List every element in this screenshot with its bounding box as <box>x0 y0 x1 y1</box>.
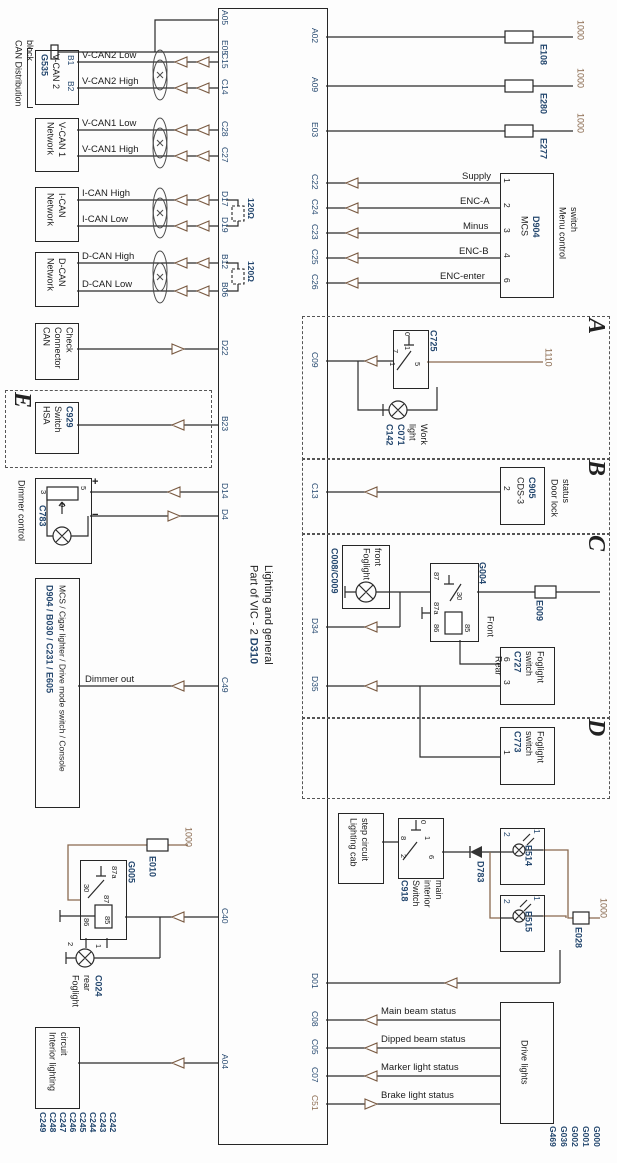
c024-id: C024 <box>93 975 102 1007</box>
pin-b1: B1 <box>66 55 75 65</box>
mcs-pin-6: 6 <box>502 278 511 283</box>
c727-pin-3: 3 <box>502 680 511 685</box>
wire-1000-e028: 1000 <box>598 898 607 918</box>
g535-name: V-CAN 2 <box>50 54 59 89</box>
cds3-pin-2: 2 <box>502 486 511 491</box>
e514-pin-2: 2 <box>502 832 511 837</box>
conn-c246: C246 <box>68 1112 77 1132</box>
c725-switch-box <box>393 330 429 389</box>
interior-l1: Interior lighting <box>47 1032 56 1091</box>
c918-switch-box <box>398 818 444 879</box>
cds3-id: C905 <box>526 477 535 504</box>
signal-supply: Supply <box>462 171 491 182</box>
menu-switch-caption: Menu control switch <box>557 207 578 259</box>
pin-d22: D22 <box>220 340 229 356</box>
pin-e03: E03 <box>310 122 319 137</box>
mcs-id: D904 <box>530 216 539 238</box>
mcs-pin-3: 3 <box>502 228 511 233</box>
pin-c26: C26 <box>310 274 319 290</box>
c727-id: C727 <box>512 651 521 683</box>
c024-l2: rear <box>81 975 90 1007</box>
ican-name: I-CAN <box>56 193 65 226</box>
wire-1000-e03: 1000 <box>575 113 584 133</box>
work-light-id-c142: C142 <box>384 424 393 446</box>
section-d-box <box>302 717 610 799</box>
pin-c15: C15 <box>220 53 229 69</box>
g004-pin-86: 86 <box>432 624 440 632</box>
hsa-switch-label: HSA Switch C929 <box>41 406 73 433</box>
ground-g469: G469 <box>548 1126 557 1147</box>
pin-b2: B2 <box>66 81 75 91</box>
d783-id: D783 <box>475 861 484 883</box>
wire-label-dcan-low: D-CAN Low <box>82 279 132 290</box>
foglight-front-l1: Foglight <box>361 548 370 580</box>
c727-pin-6: 6 <box>502 657 511 662</box>
ican-type: Network <box>45 193 54 226</box>
c773-l2: switch <box>523 731 532 763</box>
pin-a04: A04 <box>220 1054 229 1069</box>
resistor-120-ican: 120Ω <box>246 198 255 219</box>
c725-pin-7: 7 <box>391 349 399 353</box>
conn-c248: C248 <box>48 1112 57 1132</box>
can-group-label: CAN Distribution block <box>13 40 34 107</box>
mcs-pin-1: 1 <box>502 178 511 183</box>
c727-l2: switch <box>523 651 532 683</box>
pin-c09: C09 <box>310 352 319 368</box>
pin-c40: C40 <box>220 908 229 924</box>
ground-g002: G002 <box>570 1126 579 1147</box>
pin-d17: D17 <box>220 191 229 207</box>
dcan-name: D-CAN <box>56 258 65 291</box>
title-part: Part of VIC - 2 <box>248 565 260 635</box>
conn-c249: C249 <box>38 1112 47 1132</box>
concheck-l3: Check <box>64 327 73 369</box>
dimmer-pin-9: 9 <box>58 503 66 507</box>
c725-pin-0: 0 <box>403 332 411 336</box>
wire-label-vcan1-high: V-CAN1 High <box>82 144 139 155</box>
c918-pin-8: 8 <box>399 836 407 840</box>
e515-id: E515 <box>523 911 532 932</box>
signal-enc-enter: ENC-enter <box>440 271 485 282</box>
pin-d35: D35 <box>310 676 319 692</box>
menu-caption-l2: switch <box>568 207 577 259</box>
work-light-l1: Work <box>418 424 427 446</box>
can-connector-check-label: CAN Connector Check <box>41 327 73 369</box>
fuse-e277-id: E277 <box>538 138 547 159</box>
hsa-l1: HSA <box>41 406 50 433</box>
foglight-front-ids: C008/C009 <box>329 548 338 594</box>
pin-c13: C13 <box>310 483 319 499</box>
ground-g001: G001 <box>581 1126 590 1147</box>
wire-label-ican-low: I-CAN Low <box>82 214 128 225</box>
section-b-letter: B <box>582 460 609 476</box>
conn-c243: C243 <box>98 1112 107 1132</box>
ground-g036: G036 <box>559 1126 568 1147</box>
c725-pin-5: 5 <box>413 362 421 366</box>
menu-caption-l1: Menu control <box>557 207 566 259</box>
title-code: D310 <box>248 638 260 664</box>
front-wire-label: Front <box>485 616 494 637</box>
e514-id: E514 <box>523 845 532 866</box>
mcs-pin-4: 4 <box>502 253 511 258</box>
section-e-letter: E <box>8 392 35 408</box>
c725-id: C725 <box>428 330 437 352</box>
wire-label-vcan1-low: V-CAN1 Low <box>82 118 136 129</box>
resistor-120-dcan: 120Ω <box>246 261 255 282</box>
section-a-box <box>302 316 610 460</box>
g005-pin-86: 86 <box>82 918 90 926</box>
signal-enc-a: ENC-A <box>460 196 490 207</box>
pin-d34: D34 <box>310 618 319 634</box>
pin-c07: C07 <box>310 1067 319 1083</box>
door-lock-l2: status <box>560 479 569 517</box>
pin-a09: A09 <box>310 77 319 92</box>
c773-id: C773 <box>512 731 521 763</box>
cab-step-l1: Lighting cab <box>348 818 357 867</box>
conn-c247: C247 <box>58 1112 67 1132</box>
dimmer-out-label: Dimmer out <box>85 674 134 685</box>
hsa-l2: Switch <box>52 406 61 433</box>
vcan1-name: V-CAN 1 <box>56 122 65 157</box>
pin-d14: D14 <box>220 483 229 499</box>
pin-d19: D19 <box>220 217 229 233</box>
c725-pin-1a: 1 <box>403 346 411 350</box>
pin-d01: D01 <box>310 973 319 989</box>
ecu-title: Part of VIC - 2 D310 Lighting and genera… <box>247 565 273 665</box>
door-lock-caption: Door lock status <box>549 479 570 517</box>
c918-id: C918 <box>399 880 408 908</box>
g005-pin-87a: 87a <box>110 866 118 879</box>
dimmer-pin-3: 3 <box>39 490 47 494</box>
fuse-e010-id: E010 <box>147 856 156 877</box>
pin-c08: C08 <box>310 1011 319 1027</box>
dimmer-id: C783 <box>37 505 46 527</box>
pin-c28: C28 <box>220 121 229 137</box>
door-lock-l1: Door lock <box>549 479 558 517</box>
pin-c23: C23 <box>310 224 319 240</box>
g004-pin-87a: 87a <box>432 602 440 615</box>
wire-label-dcan-high: D-CAN High <box>82 251 134 262</box>
g004-pin-87: 87 <box>432 572 440 580</box>
pin-a02: A02 <box>310 28 319 43</box>
c918-pin-2: 2 <box>399 854 407 858</box>
conn-c244: C244 <box>88 1112 97 1132</box>
wire-label-ican-high: I-CAN High <box>82 188 130 199</box>
c725-pin-1b: 1 <box>388 362 396 366</box>
conn-c242: C242 <box>108 1112 117 1132</box>
mcs-box-label: MCS D904 <box>519 216 540 238</box>
signal-main-beam: Main beam status <box>381 1006 456 1017</box>
concheck-l1: CAN <box>41 327 50 369</box>
e514-pin-1: 1 <box>532 829 541 834</box>
pin-b23: B23 <box>220 416 229 431</box>
vcan1-network-label: Network V-CAN 1 <box>45 122 66 157</box>
c918-pin-6: 6 <box>427 855 435 859</box>
work-light-label: C142 C071 light Work <box>384 424 428 446</box>
section-d-letter: D <box>582 719 609 736</box>
signal-enc-b: ENC-B <box>459 246 489 257</box>
wiring-diagram: A05 E05 C15 C14 C28 C27 D17 D19 B12 B06 … <box>0 0 617 1163</box>
wire-1000-a09: 1000 <box>575 68 584 88</box>
rear-foglight-label: Foglight rear C024 <box>70 975 102 1007</box>
vcan1-type: Network <box>45 122 54 157</box>
fuse-e028-id: E028 <box>573 927 582 948</box>
g005-pin-85: 85 <box>103 916 111 924</box>
wire-1110: 1110 <box>543 348 552 367</box>
c024-pin-1: 1 <box>94 944 102 948</box>
c918-pin-1: 1 <box>423 836 431 840</box>
ground-g000: G000 <box>592 1126 601 1147</box>
console-box-label: D904 / B030 / C231 / E605 MCS / Cigar li… <box>44 585 66 772</box>
c773-pin-1: 1 <box>502 750 511 755</box>
pin-d4: D4 <box>220 509 229 520</box>
pin-c49: C49 <box>220 677 229 693</box>
c024-l1: Foglight <box>70 975 79 1007</box>
pin-a05: A05 <box>220 10 229 25</box>
can-group-label-l2: block <box>24 40 33 107</box>
foglight-front-l2: front <box>372 548 381 580</box>
pin-c14: C14 <box>220 79 229 95</box>
wire-1000-e010: 1000 <box>183 827 192 847</box>
pin-b06: B06 <box>220 282 229 297</box>
e515-pin-2: 2 <box>502 899 511 904</box>
cab-step-l2: step circuit <box>359 818 368 867</box>
ican-network-label: Network I-CAN <box>45 193 66 226</box>
g004-pin-85: 85 <box>463 624 471 632</box>
c918-l1: Switch <box>410 880 419 908</box>
dcan-type: Network <box>45 258 54 291</box>
concheck-l2: Connector <box>52 327 61 369</box>
c918-label: C918 Switch interior main <box>399 880 443 908</box>
g005-pin-30: 30 <box>82 884 90 892</box>
c727-l1: Foglight <box>535 651 544 683</box>
drive-lights-label: Drive lights <box>519 1040 528 1085</box>
pin-c51: C51 <box>310 1095 319 1111</box>
pin-c27: C27 <box>220 147 229 163</box>
g004-pin-30: 30 <box>455 592 463 600</box>
fuse-e009-id: E009 <box>534 600 543 621</box>
c918-l2: interior <box>422 880 431 908</box>
fuse-e108-id: E108 <box>538 44 547 65</box>
signal-marker-light: Marker light status <box>381 1062 459 1073</box>
dcan-network-label: Network D-CAN <box>45 258 66 291</box>
dimmer-minus: − <box>92 509 98 521</box>
dimmer-pin-5: 5 <box>79 486 87 490</box>
console-ids: D904 / B030 / C231 / E605 <box>44 585 53 772</box>
g004-id: G004 <box>477 562 486 584</box>
cds3-name: CDS-3 <box>515 477 524 504</box>
dimmer-plus: + <box>92 476 98 488</box>
pin-c22: C22 <box>310 174 319 190</box>
fuse-e280-id: E280 <box>538 93 547 114</box>
mcs-name: MCS <box>519 216 528 238</box>
pin-b12: B12 <box>220 254 229 269</box>
pin-c05: C05 <box>310 1039 319 1055</box>
pin-c25: C25 <box>310 249 319 265</box>
hsa-id: C929 <box>64 406 73 433</box>
can-dist-block-label: G535 V-CAN 2 <box>39 54 60 89</box>
title-subtitle: Lighting and general <box>262 565 274 665</box>
work-light-l2: light <box>407 424 416 446</box>
console-names: MCS / Cigar lighter / Drive mode switch … <box>57 585 66 772</box>
signal-minus: Minus <box>463 221 488 232</box>
c727-label: C727 switch Foglight <box>512 651 544 683</box>
section-c-letter: C <box>582 535 609 551</box>
conn-c245: C245 <box>78 1112 87 1132</box>
dimmer-label: Dimmer control <box>16 480 25 541</box>
foglight-front-label: Foglight front <box>361 548 382 580</box>
work-light-id-c071: C071 <box>395 424 404 446</box>
signal-brake-light: Brake light status <box>381 1090 454 1101</box>
pin-c24: C24 <box>310 199 319 215</box>
cab-step-label: Lighting cab step circuit <box>348 818 369 867</box>
interior-l2: circuit <box>58 1032 67 1091</box>
can-group-label-l1: CAN Distribution <box>13 40 22 107</box>
section-a-letter: A <box>582 318 609 334</box>
wire-1000-a02: 1000 <box>575 20 584 40</box>
c918-pin-0: 0 <box>419 820 427 824</box>
c024-pin-2: 2 <box>66 942 74 946</box>
c773-l1: Foglight <box>535 731 544 763</box>
c773-label: C773 switch Foglight <box>512 731 544 763</box>
wire-label-vcan2-high: V-CAN2 High <box>82 76 139 87</box>
g005-pin-87: 87 <box>102 895 110 903</box>
mcs-pin-2: 2 <box>502 203 511 208</box>
cds3-label: CDS-3 C905 <box>515 477 536 504</box>
e515-pin-1: 1 <box>532 896 541 901</box>
g535-id: G535 <box>39 54 48 89</box>
diode-icon <box>470 846 482 858</box>
signal-dipped-beam: Dipped beam status <box>381 1034 466 1045</box>
c918-l3: main <box>433 880 442 908</box>
interior-lighting-label: Interior lighting circuit <box>47 1032 68 1091</box>
wire-label-vcan2-low: V-CAN2 Low <box>82 50 136 61</box>
g005-id: G005 <box>126 861 135 883</box>
